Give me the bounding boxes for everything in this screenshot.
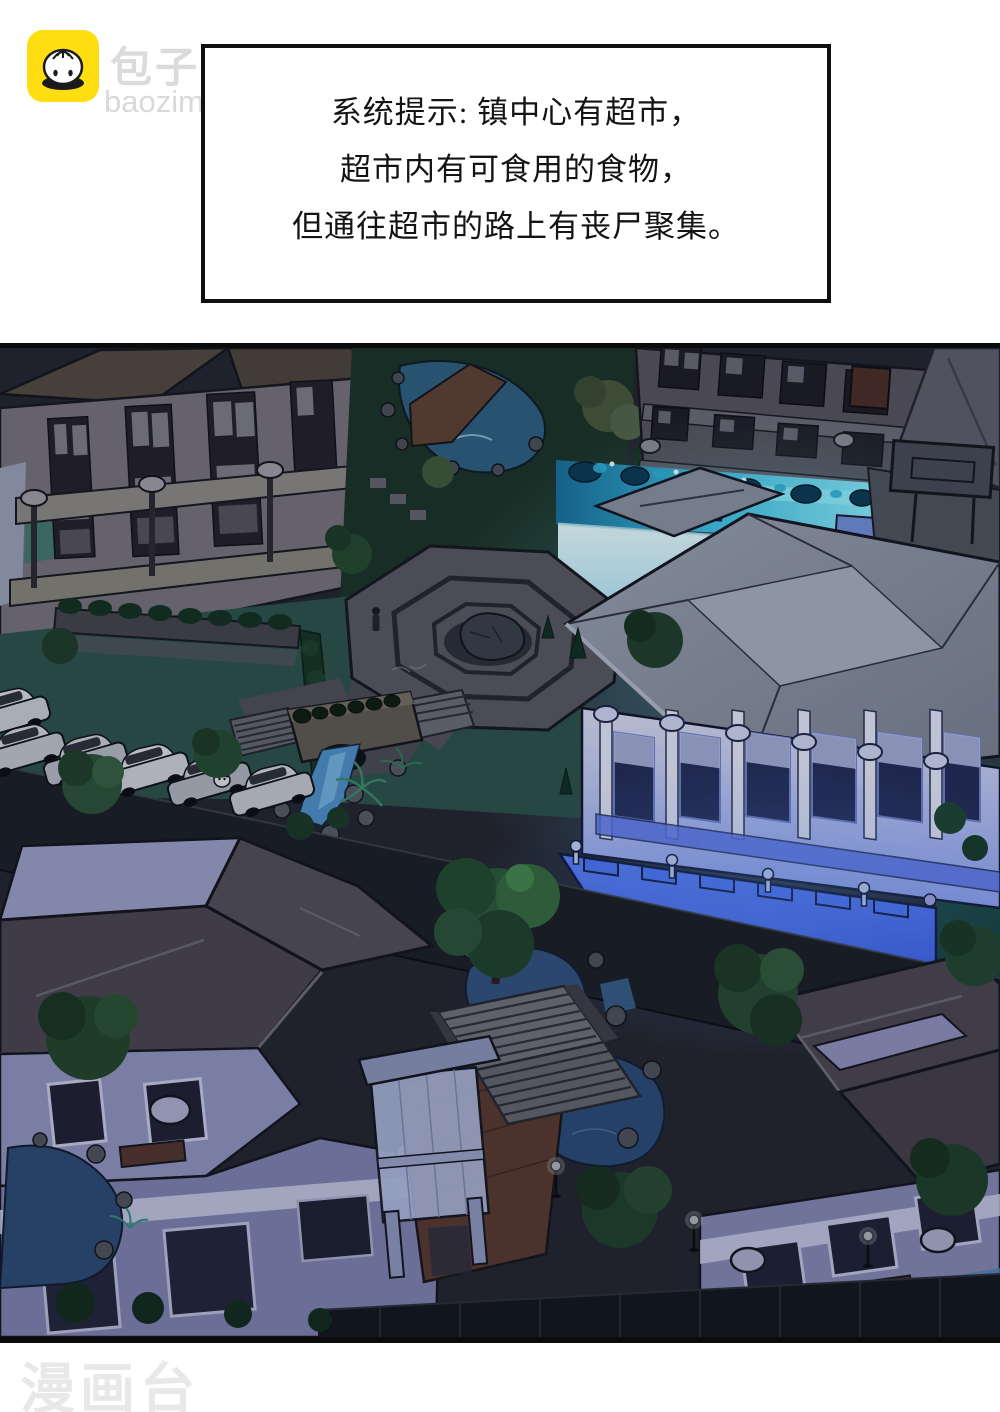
dialog-line-2: 超市内有可食用的食物，: [205, 141, 827, 198]
dialog-line-1: 系统提示: 镇中心有超市，: [205, 84, 827, 141]
night-scene-illustration: [0, 348, 1000, 1337]
comic-panel: [0, 343, 1000, 1343]
dialog-line-3: 但通往超市的路上有丧尸聚集。: [205, 198, 827, 255]
system-dialog-box: 系统提示: 镇中心有超市， 超市内有可食用的食物， 但通往超市的路上有丧尸聚集。: [201, 44, 831, 303]
baozi-bun-logo-icon: [27, 30, 99, 102]
comic-page: 包子漫畫 baozimh.com 系统提示: 镇中心有超市， 超市内有可食用的食…: [0, 0, 1000, 1412]
night-tint-overlay: [0, 348, 1000, 1337]
footer-watermark: 漫画台: [20, 1344, 200, 1412]
